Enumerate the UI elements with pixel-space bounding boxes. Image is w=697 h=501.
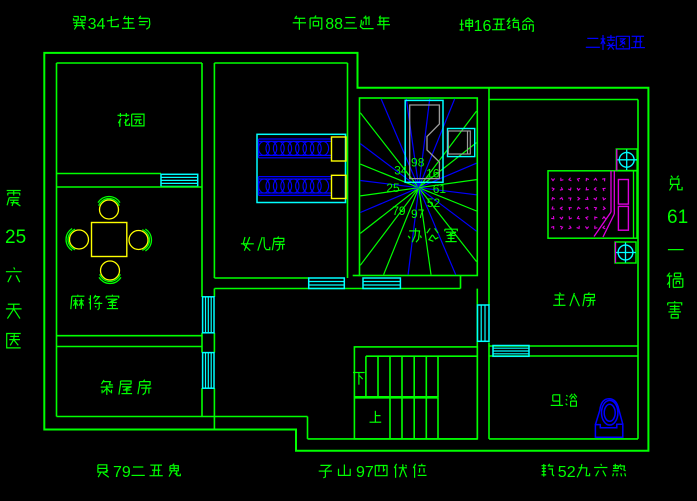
svg-text:97: 97 <box>411 207 425 221</box>
svg-text:98: 98 <box>411 155 425 169</box>
svg-text:61: 61 <box>667 207 688 228</box>
svg-text:97: 97 <box>356 464 374 481</box>
svg-text:34: 34 <box>394 163 408 177</box>
svg-text:34: 34 <box>88 16 106 33</box>
svg-text:61: 61 <box>433 182 447 196</box>
svg-text:16: 16 <box>426 167 440 181</box>
svg-text:88: 88 <box>325 16 343 33</box>
svg-text:25: 25 <box>5 227 26 248</box>
svg-text:16: 16 <box>474 18 492 35</box>
svg-text:79: 79 <box>113 464 131 481</box>
svg-text:52: 52 <box>427 196 441 210</box>
svg-text:25: 25 <box>386 181 400 195</box>
svg-text:79: 79 <box>392 204 406 218</box>
svg-text:52: 52 <box>558 464 576 481</box>
